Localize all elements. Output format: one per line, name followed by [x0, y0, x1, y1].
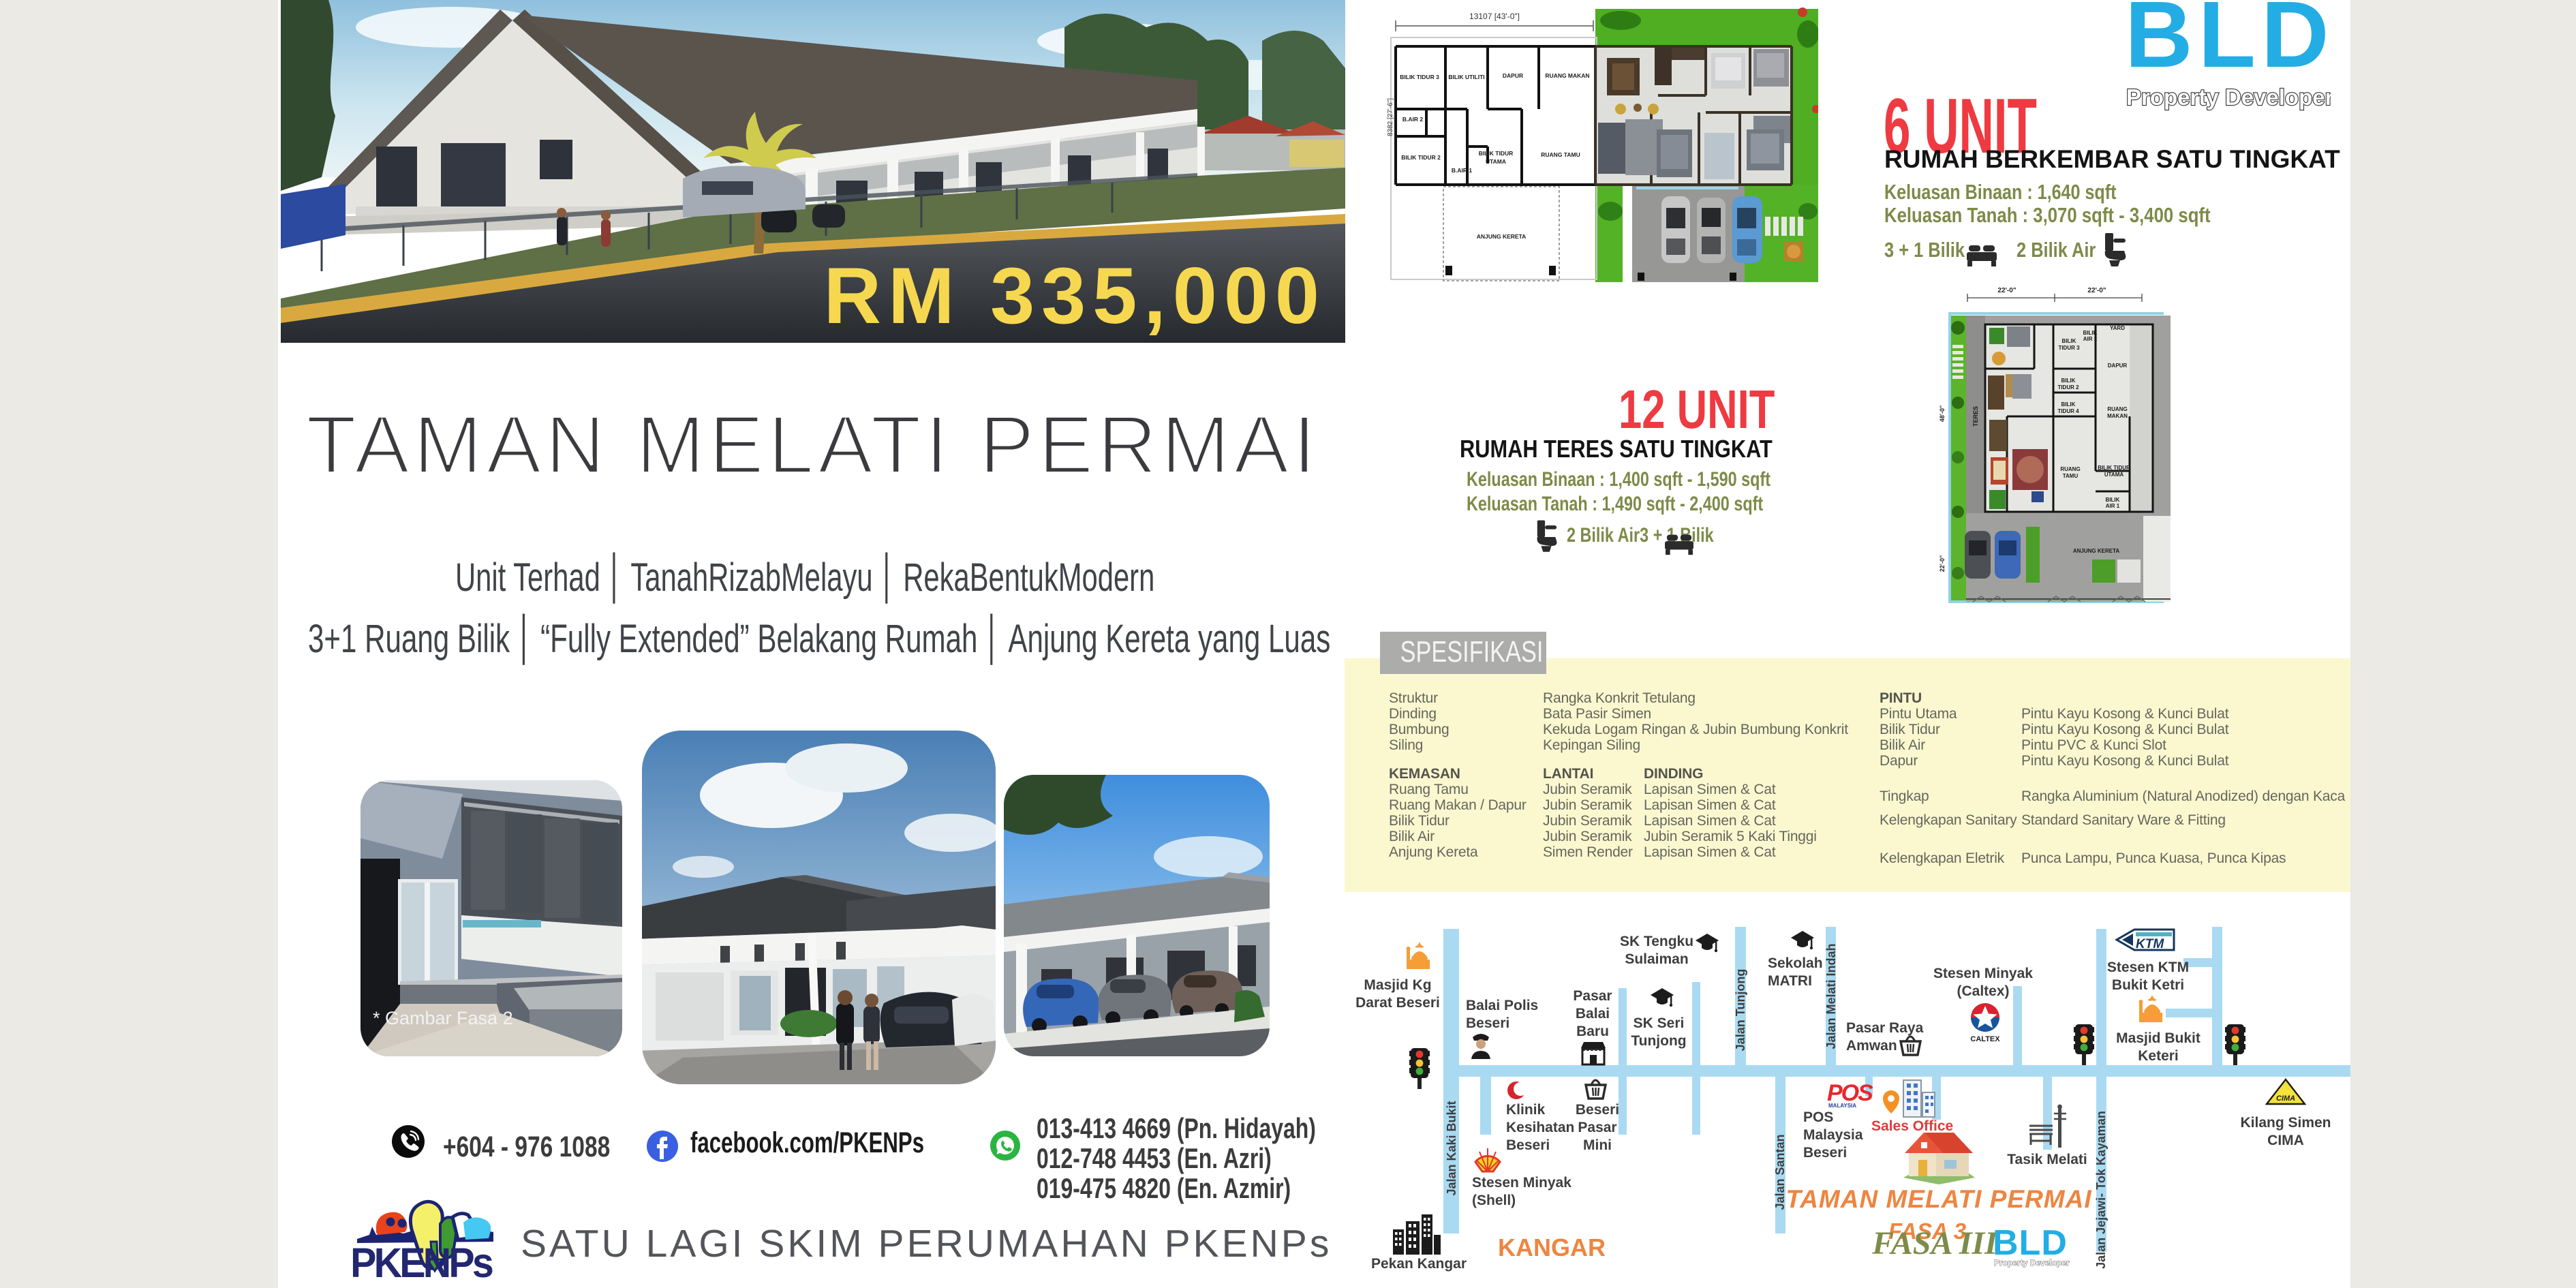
- svg-text:Pasar Raya: Pasar Raya: [1846, 1020, 1924, 1036]
- svg-text:RUANG MAKAN: RUANG MAKAN: [1545, 72, 1589, 79]
- svg-text:BILIK UTILITI: BILIK UTILITI: [1448, 74, 1484, 80]
- svg-text:MALAYSIA: MALAYSIA: [1828, 1103, 1856, 1109]
- svg-text:SK Tengku: SK Tengku: [1620, 934, 1693, 949]
- svg-text:CIMA: CIMA: [2267, 1133, 2304, 1148]
- svg-text:AIR 2: AIR 2: [2083, 336, 2098, 342]
- svg-text:RUANG: RUANG: [2107, 406, 2127, 412]
- svg-text:BILIK: BILIK: [2061, 378, 2076, 384]
- svg-text:BILIK TIDUR 2: BILIK TIDUR 2: [1401, 154, 1441, 161]
- svg-text:Mini: Mini: [1583, 1137, 1612, 1153]
- svg-text:Jalan Santan: Jalan Santan: [1773, 1134, 1787, 1210]
- svg-text:(Caltex): (Caltex): [1957, 983, 2009, 999]
- svg-text:TIDUR 4: TIDUR 4: [2057, 408, 2079, 414]
- svg-text:BILIK: BILIK: [2062, 338, 2076, 344]
- svg-text:Sales Office: Sales Office: [1871, 1118, 1953, 1134]
- svg-text:TIDUR 2: TIDUR 2: [2057, 384, 2079, 390]
- svg-text:BILIK: BILIK: [2106, 497, 2120, 503]
- svg-text:* Gambar Fasa 2: * Gambar Fasa 2: [373, 1008, 513, 1028]
- svg-text:Beseri: Beseri: [1466, 1015, 1509, 1031]
- svg-text:Balai Polis: Balai Polis: [1466, 998, 1538, 1013]
- svg-text:UTAMA: UTAMA: [1486, 158, 1506, 165]
- svg-text:Beseri: Beseri: [1506, 1137, 1550, 1153]
- svg-text:TAMU: TAMU: [2063, 473, 2079, 479]
- svg-text:Sekolah: Sekolah: [1768, 955, 1823, 971]
- svg-text:Property Developer: Property Developer: [1994, 1258, 2070, 1268]
- svg-text:Masjid Bukit: Masjid Bukit: [2116, 1030, 2201, 1046]
- svg-text:BILIK TIDUR: BILIK TIDUR: [2098, 465, 2130, 471]
- svg-text:22'-0": 22'-0": [1997, 287, 2016, 294]
- svg-text:ANJUNG KERETA: ANJUNG KERETA: [1477, 233, 1527, 240]
- svg-text:Pekan Kangar: Pekan Kangar: [1371, 1256, 1467, 1272]
- svg-text:UTAMA: UTAMA: [2104, 472, 2124, 478]
- svg-text:KANGAR: KANGAR: [1498, 1233, 1606, 1261]
- svg-text:B.AIR 1: B.AIR 1: [1452, 167, 1473, 174]
- svg-text:RUANG TAMU: RUANG TAMU: [1541, 151, 1580, 158]
- svg-text:KTM: KTM: [2136, 937, 2164, 951]
- svg-text:Tunjong: Tunjong: [1631, 1033, 1686, 1049]
- svg-text:TIDUR 3: TIDUR 3: [2058, 345, 2080, 351]
- svg-text:Balai: Balai: [1576, 1006, 1610, 1022]
- svg-text:8382 [27'-6"]: 8382 [27'-6"]: [1387, 98, 1394, 136]
- svg-text:Stesen KTM: Stesen KTM: [2107, 960, 2189, 975]
- svg-text:Darat Beseri: Darat Beseri: [1356, 995, 1440, 1011]
- svg-text:Kilang Simen: Kilang Simen: [2240, 1115, 2331, 1131]
- svg-text:Keteri: Keteri: [2138, 1048, 2179, 1064]
- svg-text:Property Developer: Property Developer: [2126, 85, 2331, 110]
- svg-text:BILIK TIDUR 3: BILIK TIDUR 3: [1400, 74, 1439, 80]
- svg-text:MAKAN: MAKAN: [2107, 413, 2128, 419]
- svg-text:ANJUNG KERETA: ANJUNG KERETA: [2073, 548, 2120, 554]
- svg-text:Pasar: Pasar: [1573, 988, 1612, 1004]
- svg-text:Baru: Baru: [1576, 1024, 1609, 1039]
- svg-text:DAPUR: DAPUR: [1503, 72, 1523, 79]
- svg-text:Bukit Ketri: Bukit Ketri: [2112, 977, 2184, 993]
- svg-text:(Shell): (Shell): [1472, 1193, 1516, 1208]
- svg-text:Pasar: Pasar: [1578, 1120, 1616, 1135]
- svg-text:Tasik Melati: Tasik Melati: [2007, 1152, 2087, 1167]
- svg-text:TERES: TERES: [1972, 406, 1979, 427]
- svg-text:Jalan Melati Indah: Jalan Melati Indah: [1824, 943, 1838, 1049]
- svg-text:B.AIR 2: B.AIR 2: [1402, 116, 1424, 123]
- svg-text:CIMA: CIMA: [2276, 1094, 2295, 1103]
- svg-text:Masjid Kg: Masjid Kg: [1364, 977, 1431, 993]
- svg-text:BLD: BLD: [1993, 1223, 2068, 1263]
- svg-text:22'-0": 22'-0": [1939, 555, 1946, 572]
- svg-text:Klinik: Klinik: [1506, 1102, 1545, 1118]
- svg-text:Beseri: Beseri: [1803, 1145, 1847, 1161]
- svg-text:Beseri: Beseri: [1576, 1102, 1619, 1118]
- svg-text:13107 [43'-0"]: 13107 [43'-0"]: [1469, 12, 1520, 21]
- svg-text:YARD: YARD: [2110, 325, 2125, 331]
- svg-text:Sulaiman: Sulaiman: [1625, 951, 1688, 967]
- svg-text:Jalan Jejawi- Tok Kayaman: Jalan Jejawi- Tok Kayaman: [2094, 1111, 2108, 1269]
- svg-text:SK Seri: SK Seri: [1634, 1015, 1685, 1031]
- svg-text:PKENPs: PKENPs: [352, 1239, 493, 1285]
- svg-text:Jalan Kaki Bukit: Jalan Kaki Bukit: [1445, 1101, 1458, 1195]
- svg-text:BILIK: BILIK: [2061, 401, 2076, 408]
- svg-text:CALTEX: CALTEX: [1970, 1035, 2000, 1043]
- svg-text:Kesihatan: Kesihatan: [1506, 1120, 1574, 1135]
- svg-text:Malaysia: Malaysia: [1803, 1127, 1863, 1143]
- svg-text:RM 335,000: RM 335,000: [824, 251, 1326, 340]
- svg-text:Stesen Minyak: Stesen Minyak: [1472, 1175, 1571, 1191]
- svg-text:TAMAN MELATI PERMAI: TAMAN MELATI PERMAI: [1785, 1185, 2091, 1213]
- svg-text:AIR 1: AIR 1: [2106, 503, 2120, 509]
- svg-text:FASA III: FASA III: [1871, 1225, 1999, 1261]
- svg-text:DAPUR: DAPUR: [2108, 363, 2128, 369]
- svg-text:BILIK: BILIK: [2083, 330, 2098, 336]
- svg-text:POS: POS: [1803, 1109, 1833, 1125]
- svg-text:BILIK TIDUR: BILIK TIDUR: [1479, 150, 1514, 157]
- svg-text:Amwan: Amwan: [1846, 1038, 1897, 1054]
- svg-text:MATRI: MATRI: [1768, 973, 1812, 989]
- svg-text:Stesen Minyak: Stesen Minyak: [1933, 966, 2033, 981]
- svg-text:22'-0": 22'-0": [2087, 287, 2106, 294]
- svg-text:48'-0": 48'-0": [1939, 405, 1946, 422]
- svg-text:Jalan Tunjong: Jalan Tunjong: [1734, 969, 1747, 1052]
- svg-text:RUANG: RUANG: [2060, 466, 2080, 472]
